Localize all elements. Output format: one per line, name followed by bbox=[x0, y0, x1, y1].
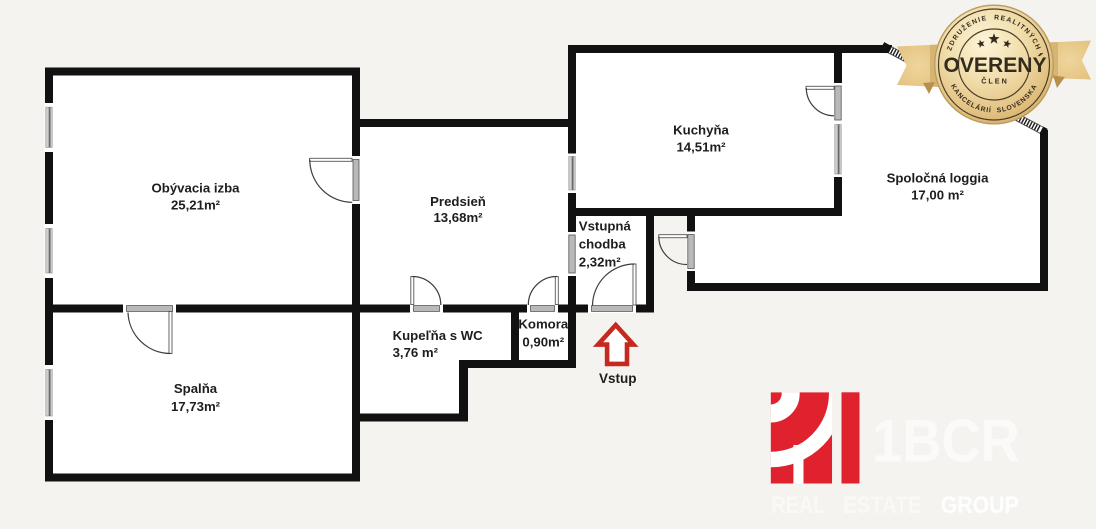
svg-text:1BCR: 1BCR bbox=[872, 408, 1020, 475]
svg-text:REAL: REAL bbox=[771, 492, 825, 519]
svg-text:chodba: chodba bbox=[579, 237, 627, 252]
svg-text:ESTATE: ESTATE bbox=[843, 492, 922, 519]
svg-text:Spoločná loggia: Spoločná loggia bbox=[887, 170, 990, 185]
svg-text:Predsieň: Predsieň bbox=[430, 194, 486, 209]
svg-text:0,90m²: 0,90m² bbox=[522, 334, 564, 349]
svg-text:17,73m²: 17,73m² bbox=[171, 399, 221, 414]
svg-text:2,32m²: 2,32m² bbox=[579, 255, 621, 270]
svg-text:25,21m²: 25,21m² bbox=[171, 198, 221, 213]
svg-text:OVERENÝ: OVERENÝ bbox=[944, 52, 1047, 77]
svg-text:Vstup: Vstup bbox=[599, 371, 637, 386]
svg-text:GROUP: GROUP bbox=[941, 492, 1019, 519]
svg-text:Kupeľňa s WC: Kupeľňa s WC bbox=[393, 328, 484, 343]
svg-text:ČLEN: ČLEN bbox=[981, 77, 1009, 86]
svg-text:Obývacia izba: Obývacia izba bbox=[152, 181, 241, 196]
svg-text:Vstupná: Vstupná bbox=[579, 218, 632, 233]
svg-text:Komora: Komora bbox=[518, 316, 568, 331]
svg-text:14,51m²: 14,51m² bbox=[676, 140, 726, 155]
svg-text:3,76 m²: 3,76 m² bbox=[393, 345, 439, 360]
svg-text:Spalňa: Spalňa bbox=[174, 381, 218, 396]
svg-text:13,68m²: 13,68m² bbox=[433, 210, 483, 225]
svg-text:Kuchyňa: Kuchyňa bbox=[673, 123, 729, 138]
svg-text:17,00 m²: 17,00 m² bbox=[911, 188, 964, 203]
